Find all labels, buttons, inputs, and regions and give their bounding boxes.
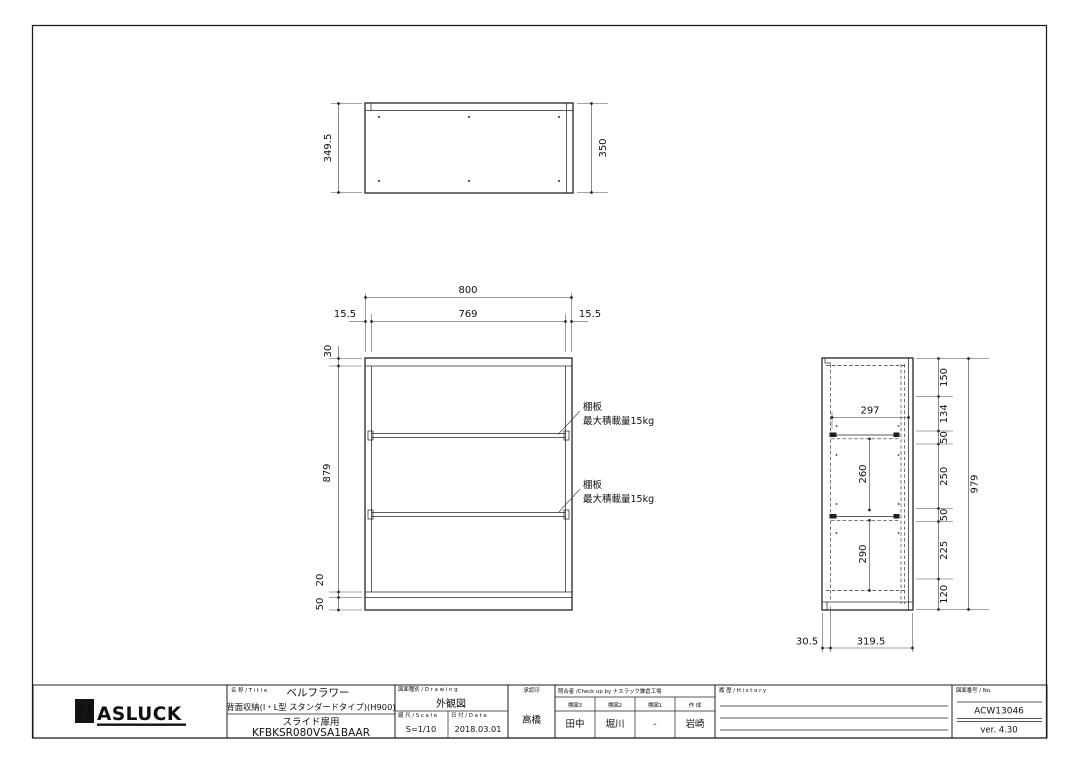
front-dims-top: 800 769 15.5 15.5 [334, 285, 601, 352]
scale-value: S=1/10 [406, 724, 436, 734]
side-dim-total-height: 979 [969, 359, 981, 610]
drawing-version: ver. 4.30 [980, 726, 1017, 736]
front-dims-left: 30 879 20 50 [315, 345, 362, 612]
check-col-1-label: 検図1 [648, 701, 662, 709]
dim-side-total: 979 [970, 474, 981, 493]
front-shelf-upper [368, 431, 569, 440]
product-model-code: KFBKSR080VSA1BAAR [252, 727, 370, 739]
dim-front-offset-left: 15.5 [334, 309, 356, 320]
dim-side-seg-3: 50 [939, 431, 950, 444]
check-col-author-name: 岩崎 [685, 718, 705, 730]
top-view-screw-dots [378, 116, 560, 182]
drawing-type-label: 図面種別 / D r a w i n g [398, 685, 458, 693]
check-col-2-name: 堀川 [605, 719, 624, 730]
side-dims-bottom: 30.5 319.5 [796, 606, 913, 652]
date-label: 日 付 / D a t e [451, 711, 487, 719]
logo-wordmark: ASLUCK [97, 704, 182, 725]
dim-front-base: 50 [315, 598, 326, 611]
shelf-note-upper-load: 最大積載量15kg [583, 415, 654, 427]
logo-underline [97, 724, 186, 726]
dim-side-upper-gap: 260 [858, 464, 869, 483]
dim-side-seg-5: 50 [939, 509, 950, 522]
check-col-3-label: 検図3 [568, 701, 582, 709]
drawing-no-value: ACW13046 [974, 707, 1024, 717]
top-view-dim-left: 349.5 [323, 104, 362, 193]
dim-front-top-panel: 30 [323, 345, 334, 358]
title-block: N ASLUCK 名 称 / T i t l e ベルフラワー 背面収納(I・L… [33, 685, 1047, 739]
side-dim-lower-gap: 290 [858, 520, 870, 590]
approval-label: 承認印 [523, 686, 539, 694]
product-series-name: ベルフラワー [287, 687, 350, 699]
side-shelf-lower [830, 514, 900, 520]
dim-front-width: 800 [458, 285, 477, 296]
side-dim-upper-gap: 260 [858, 439, 870, 510]
shelf-note-lower-label: 棚板 [583, 479, 603, 491]
dim-side-bottom-back: 319.5 [857, 637, 886, 648]
drawing-type-value: 外観図 [436, 697, 466, 710]
drawing-no-label: 図面番号 / No. [956, 687, 992, 694]
side-shelf-upper [830, 433, 900, 439]
check-col-3-name: 田中 [565, 718, 584, 730]
product-type: 背面収納(I・L型 スタンダードタイプ)(H900) [226, 702, 395, 712]
front-shelf-lower [368, 510, 569, 519]
top-view-dim-right: 350 [577, 104, 609, 193]
title-label: 名 称 / T i t l e [231, 686, 268, 694]
check-col-author-label: 作 成 [689, 701, 702, 709]
approval-name: 高橋 [522, 714, 542, 726]
check-col-2-label: 検図2 [608, 701, 622, 709]
dim-front-inner-width: 769 [458, 309, 477, 320]
dim-front-bottom-panel: 20 [315, 574, 326, 587]
dim-top-depth-right: 350 [598, 138, 609, 157]
dim-side-seg-6: 225 [939, 541, 950, 560]
top-view: 349.5 350 [323, 103, 609, 193]
dim-side-lower-gap: 290 [858, 544, 869, 563]
dim-side-inner-width: 297 [860, 406, 879, 417]
dim-side-seg-2: 134 [939, 404, 950, 423]
side-dim-inner-width: 297 [832, 406, 909, 430]
front-view: 800 769 15.5 15.5 30 879 20 50 [315, 285, 654, 611]
drawing-canvas: 349.5 350 [0, 0, 1080, 764]
side-view: 297 260 290 150 134 50 [796, 357, 989, 652]
dim-front-offset-right: 15.5 [579, 309, 601, 320]
shelf-note-upper-label: 棚板 [583, 401, 603, 413]
check-section-label: 照合者 /Check up by ナスラック鎌倉工場 [558, 687, 662, 695]
nasluck-logo: N ASLUCK [75, 699, 186, 726]
dim-side-seg-1: 150 [939, 368, 950, 387]
dim-top-depth-left: 349.5 [323, 134, 334, 163]
shelf-note-lower-load: 最大積載量15kg [583, 493, 654, 505]
scale-label: 縮 尺 / S c a l e [398, 711, 438, 719]
dim-side-seg-7: 120 [939, 585, 950, 604]
history-label: 履 歴 / H i s t o r y [719, 687, 767, 694]
dim-front-interior: 879 [322, 463, 333, 482]
logo-n-letter: N [76, 700, 93, 724]
dim-side-bottom-front: 30.5 [796, 637, 818, 648]
drawing-frame [33, 26, 1047, 739]
check-col-1-name: - [653, 719, 656, 730]
dim-side-seg-4: 250 [939, 467, 950, 486]
date-value: 2018.03.01 [455, 724, 502, 734]
